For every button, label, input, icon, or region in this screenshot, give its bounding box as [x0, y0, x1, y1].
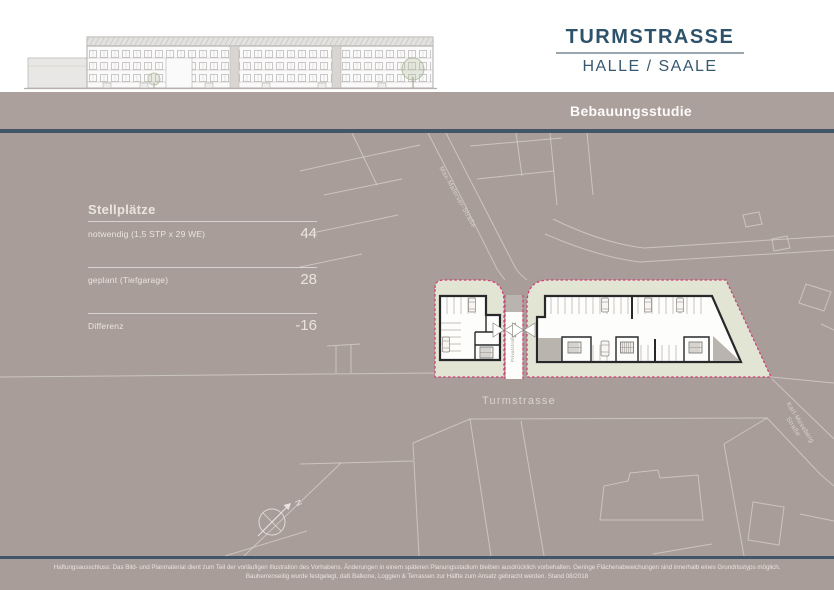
car-icon	[443, 337, 450, 352]
table-row: Differenz -16	[88, 313, 317, 334]
car-icon	[469, 298, 476, 312]
right-building	[537, 296, 741, 362]
project-location: HALLE / SAALE	[540, 58, 760, 76]
street-label-turmstrasse: Turmstrasse	[482, 395, 556, 407]
row-value: 44	[300, 225, 317, 242]
table-heading: Stellplätze	[88, 202, 317, 221]
car-icon	[645, 298, 652, 312]
driveway-label: Privatstraße	[510, 334, 515, 362]
car-icon	[602, 298, 609, 312]
row-value: 28	[300, 271, 317, 288]
section-banner-label: Bebauungsstudie	[570, 103, 692, 119]
disclaimer-footer: Haftungsausschluss: Das Bild- und Planma…	[0, 559, 834, 590]
section-banner: Bebauungsstudie	[0, 92, 834, 129]
north-compass-icon: N	[258, 498, 304, 536]
parking-stats-table: Stellplätze notwendig (1,5 STP x 29 WE) …	[88, 202, 317, 334]
street-label-max-strasse: Max-Malerver-Straße	[438, 165, 478, 229]
compass-north-label: N	[293, 498, 304, 507]
car-icon	[601, 341, 609, 356]
stair-core	[689, 342, 702, 353]
table-row: geplant (Tiefgarage) 28	[88, 267, 317, 313]
row-label: Differenz	[88, 317, 124, 331]
row-value: -16	[295, 317, 317, 334]
stair-core	[621, 342, 634, 353]
row-label: geplant (Tiefgarage)	[88, 271, 168, 285]
site-plan-area: Privatstraße	[0, 133, 834, 556]
row-label: notwendig (1,5 STP x 29 WE)	[88, 225, 205, 239]
stair-core	[480, 347, 493, 358]
site-plan-drawing: Privatstraße	[0, 133, 834, 556]
project-title: TURMSTRASSE	[540, 26, 760, 49]
table-row: notwendig (1,5 STP x 29 WE) 44	[88, 221, 317, 267]
title-underline	[556, 52, 744, 54]
disclaimer-line: Bauherrenseitig wurde festgelegt, daß Ba…	[0, 573, 834, 582]
street-label-karl-meseberg: Karl-Meseberg Straße	[778, 401, 815, 448]
header-area: TURMSTRASSE HALLE / SAALE	[0, 0, 834, 92]
elevation-annex-building	[28, 58, 87, 88]
presentation-slide: TURMSTRASSE HALLE / SAALE Bebauungsstudi…	[0, 0, 834, 590]
building-elevation-drawing	[0, 0, 470, 92]
car-icon	[677, 298, 684, 312]
driveway-ramp: Privatstraße	[505, 295, 523, 379]
stair-core	[568, 342, 581, 353]
project-title-block: TURMSTRASSE HALLE / SAALE	[540, 26, 760, 76]
elevation-main-building	[87, 37, 433, 88]
utility-room	[538, 338, 562, 361]
disclaimer-line: Haftungsausschluss: Das Bild- und Planma…	[0, 564, 834, 573]
